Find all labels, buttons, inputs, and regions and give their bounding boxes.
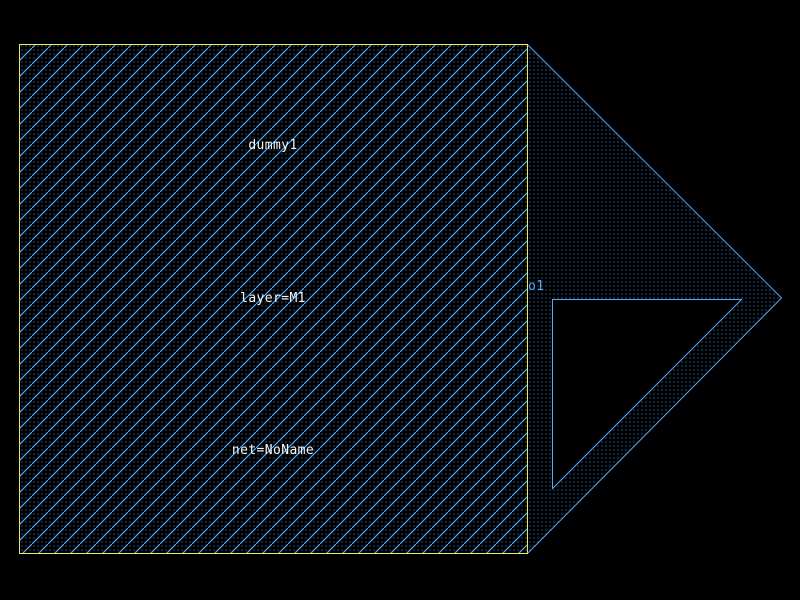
layout-canvas [0, 0, 800, 600]
cell-layer-label: layer=M1 [240, 292, 306, 305]
port-name-label: o1 [528, 280, 544, 293]
cell-name-label: dummy1 [248, 139, 297, 152]
cell-net-label: net=NoName [232, 444, 314, 457]
layout-viewport[interactable]: dummy1 layer=M1 net=NoName o1 [0, 0, 800, 600]
port-arrow-notch [553, 300, 742, 489]
